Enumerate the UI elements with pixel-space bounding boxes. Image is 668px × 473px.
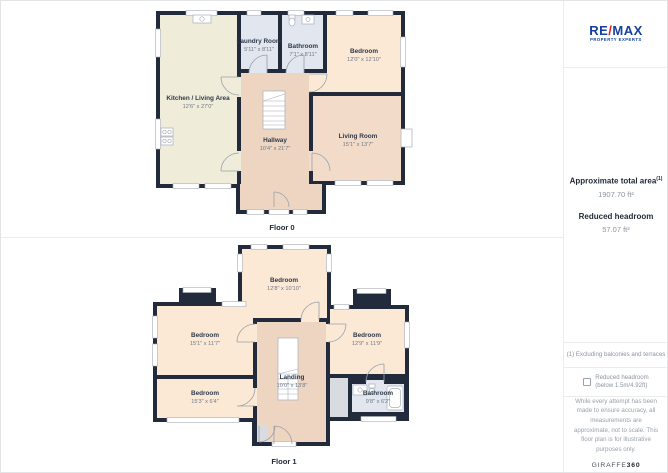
total-area-footnote-marker: (1) [656,176,662,182]
floor1-caption: Floor 1 [271,457,297,466]
room-label: Hallway [263,137,287,144]
room-dims: 12'9" x 11'9" [352,341,382,347]
room-porch [240,184,322,210]
giraffe-360: 360 [627,462,641,469]
disclaimer-section: While every attempt has been made to ens… [564,397,668,472]
disclaimer-text: While every attempt has been made to ens… [572,397,660,455]
room-dims: 5'11" x 8'11" [244,47,274,53]
room-label: Living Room [339,133,378,140]
checkbox-label-line2: (below 1.5m/4.92ft) [595,382,647,389]
total-area-value: 1907.70 ft² [598,190,634,199]
room-dims: 10'0" x 13'8" [277,383,308,389]
stairs-icon-f1 [278,338,298,400]
room-dims: 9'8" x 6'2" [366,399,390,405]
reduced-headroom-value: 57.07 ft² [602,225,630,234]
stairs-icon-f0 [263,91,285,129]
giraffe-text: GIRAFFE [592,462,627,469]
remax-re: RE [589,23,608,38]
room-dims: 12'8" x 10'10" [267,286,301,292]
reduced-headroom-legend: Reduced headroom (below 1.5m/4.92ft) [564,368,668,397]
panel-floor1: Bedroom 12'8" x 10'10" Bedroom 15'1" x 1… [1,238,563,472]
floor0-plan: Laundry Room 5'11" x 8'11" Bathroom 7'1"… [1,1,563,237]
room-dims: 12'0" x 12'10" [347,57,381,63]
room-dims: 10'4" x 21'7" [260,146,291,152]
floorplan-panels: Laundry Room 5'11" x 8'11" Bathroom 7'1"… [1,1,563,472]
room-label: Bathroom [288,43,318,50]
checkbox-label-line1: Reduced headroom [595,374,649,381]
info-sidebar: RE/MAX PROPERTY EXPERTS Approximate tota… [563,1,668,472]
remax-logo: RE/MAX PROPERTY EXPERTS [564,1,668,68]
room-label: Bathroom [363,390,393,397]
footnote: (1) Excluding balconies and terraces [564,343,668,368]
room-label: Kitchen / Living Area [166,95,230,102]
room-dims: 12'6" x 27'0" [183,104,214,110]
remax-max: MAX [612,23,642,38]
room-label: Laundry Room [236,38,281,45]
floor0-caption: Floor 0 [269,223,294,232]
reduced-headroom-label: Reduced headroom [579,212,654,221]
floorplan-page: Laundry Room 5'11" x 8'11" Bathroom 7'1"… [0,0,668,473]
reduced-headroom-area [330,378,348,417]
remax-tagline: PROPERTY EXPERTS [590,38,642,42]
room-dims: 15'1" x 13'7" [343,142,374,148]
room-label: Bedroom [353,332,381,339]
room-dims: 15'1" x 11'7" [190,341,220,347]
panel-floor0: Laundry Room 5'11" x 8'11" Bathroom 7'1"… [1,1,563,238]
checkbox-icon [583,378,591,386]
remax-wordmark: RE/MAX [589,24,643,37]
room-bedroom-passage [309,73,327,92]
room-dims: 15'3" x 6'4" [191,399,219,405]
room-label: Bedroom [191,390,219,397]
room-label: Bedroom [270,277,298,284]
floor1-plan: Bedroom 12'8" x 10'10" Bedroom 15'1" x 1… [1,238,563,472]
area-summary: Approximate total area(1) 1907.70 ft² Re… [564,68,668,343]
room-label: Landing [280,374,305,381]
total-area-label: Approximate total area(1) [570,176,663,186]
checkbox-label: Reduced headroom (below 1.5m/4.92ft) [595,374,649,390]
room-dims: 7'1" x 8'11" [289,52,316,58]
giraffe360-brand: GIRAFFE360 [592,461,641,472]
room-label: Bedroom [191,332,219,339]
room-label: Bedroom [350,48,378,55]
total-area-label-text: Approximate total area [570,177,657,186]
